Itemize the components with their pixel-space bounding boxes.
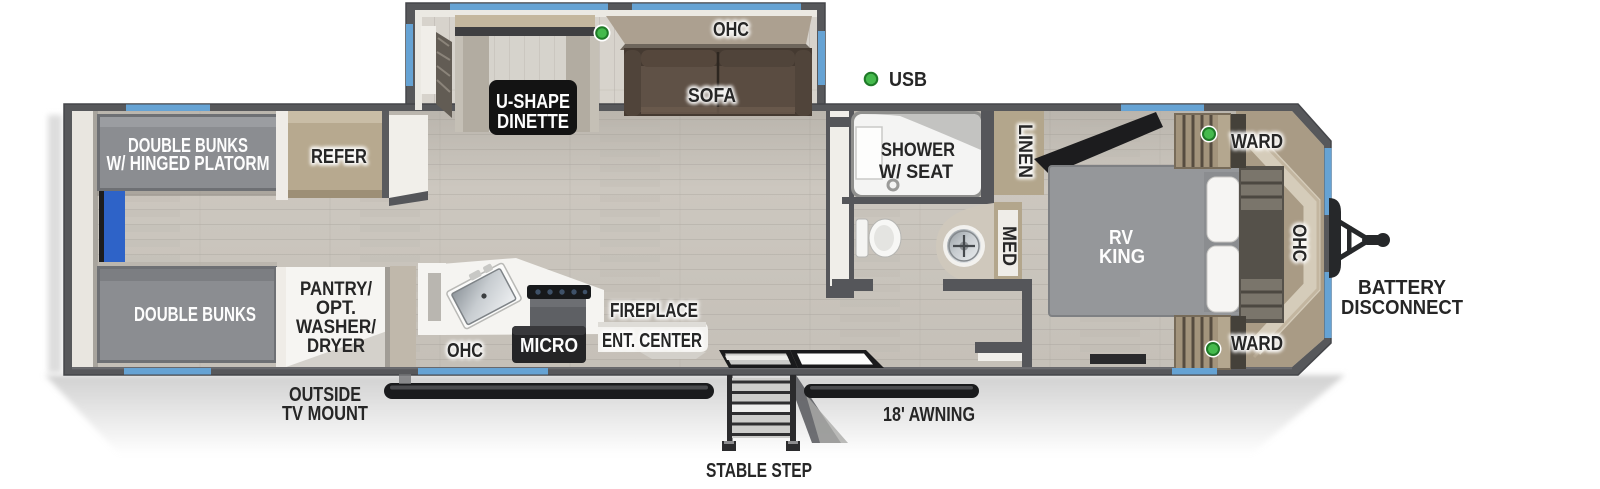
svg-text:REFER: REFER (311, 146, 367, 168)
svg-text:DOUBLE BUNKS: DOUBLE BUNKS (134, 304, 256, 326)
svg-text:OHC: OHC (447, 340, 483, 362)
svg-text:DRYER: DRYER (307, 336, 365, 357)
svg-text:LINEN: LINEN (1014, 124, 1035, 178)
svg-text:WASHER/: WASHER/ (296, 317, 377, 338)
svg-text:U-SHAPE: U-SHAPE (496, 91, 570, 113)
svg-text:SHOWER: SHOWER (881, 140, 955, 161)
svg-text:FIREPLACE: FIREPLACE (610, 300, 698, 322)
svg-text:SOFA: SOFA (688, 85, 736, 107)
svg-text:WARD: WARD (1231, 333, 1283, 355)
svg-text:WARD: WARD (1231, 131, 1283, 153)
svg-text:STABLE STEP: STABLE STEP (706, 460, 812, 482)
svg-text:DINETTE: DINETTE (497, 111, 569, 133)
svg-text:DISCONNECT: DISCONNECT (1341, 297, 1463, 319)
svg-text:USB: USB (889, 69, 927, 91)
svg-text:OHC: OHC (1288, 224, 1309, 262)
svg-text:OPT.: OPT. (316, 298, 356, 319)
svg-text:MED: MED (998, 226, 1019, 266)
svg-text:OHC: OHC (713, 19, 749, 41)
svg-text:PANTRY/: PANTRY/ (300, 279, 373, 300)
svg-text:KING: KING (1099, 246, 1145, 268)
svg-text:MICRO: MICRO (520, 335, 578, 357)
svg-text:W/ SEAT: W/ SEAT (879, 162, 953, 183)
svg-text:ENT. CENTER: ENT. CENTER (602, 330, 702, 352)
svg-text:TV MOUNT: TV MOUNT (282, 403, 368, 425)
svg-text:18' AWNING: 18' AWNING (883, 404, 975, 426)
svg-text:BATTERY: BATTERY (1358, 277, 1447, 299)
svg-text:W/ HINGED PLATORM: W/ HINGED PLATORM (107, 153, 270, 175)
